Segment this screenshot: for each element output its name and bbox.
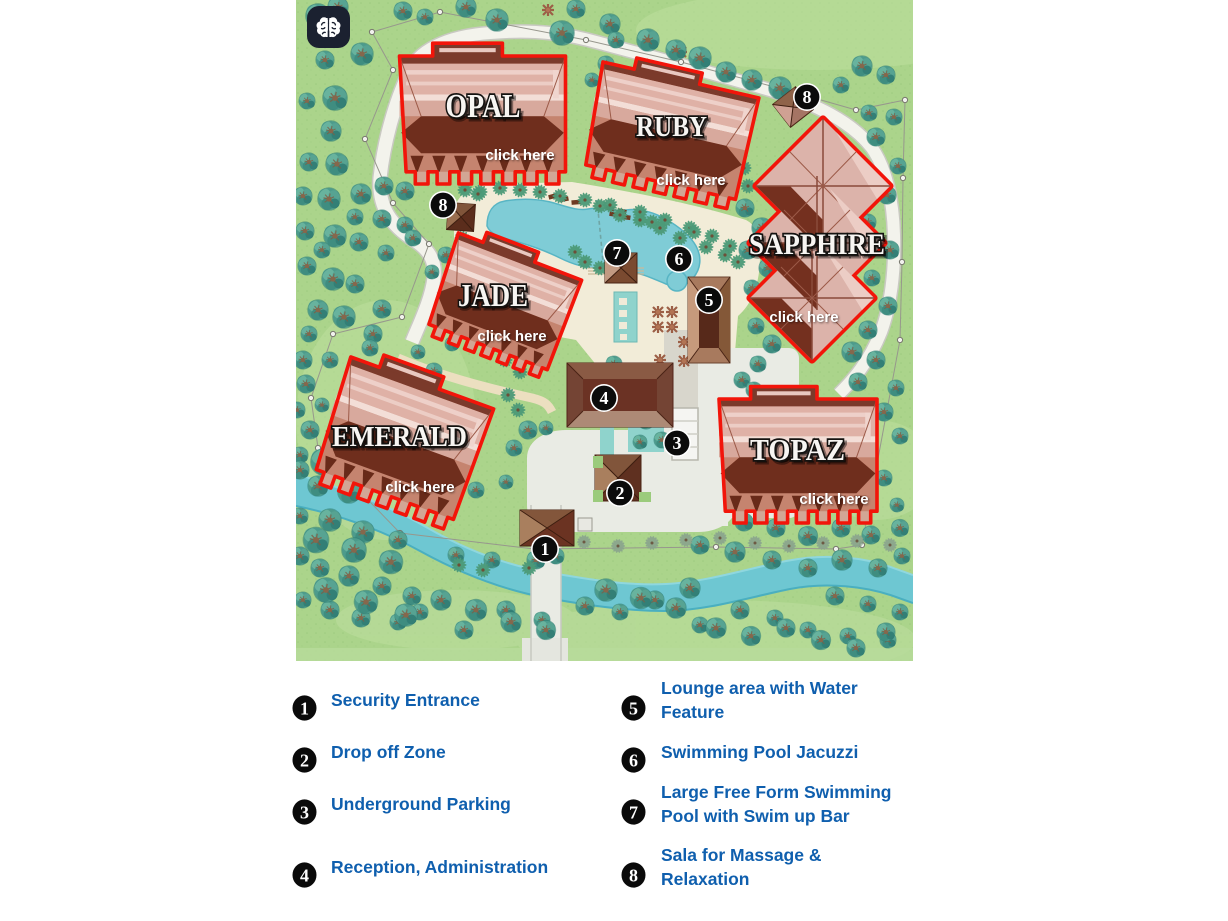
svg-text:4: 4 bbox=[300, 866, 309, 886]
svg-text:4: 4 bbox=[600, 388, 609, 408]
svg-text:3: 3 bbox=[673, 433, 682, 453]
svg-text:JADE: JADE bbox=[458, 277, 528, 313]
svg-text:8: 8 bbox=[803, 87, 812, 107]
svg-text:2: 2 bbox=[616, 483, 625, 503]
svg-text:click here: click here bbox=[477, 328, 546, 345]
svg-text:7: 7 bbox=[613, 243, 622, 263]
svg-text:RUBY: RUBY bbox=[636, 111, 707, 143]
svg-text:click here: click here bbox=[385, 479, 454, 496]
svg-text:5: 5 bbox=[705, 290, 714, 310]
svg-text:8: 8 bbox=[629, 866, 638, 886]
svg-text:1: 1 bbox=[541, 539, 550, 559]
svg-text:TOPAZ: TOPAZ bbox=[750, 432, 845, 467]
svg-text:7: 7 bbox=[629, 803, 638, 823]
svg-text:5: 5 bbox=[629, 699, 638, 719]
svg-text:SAPPHIRE: SAPPHIRE bbox=[749, 228, 885, 261]
svg-text:8: 8 bbox=[439, 195, 448, 215]
svg-text:3: 3 bbox=[300, 803, 309, 823]
svg-text:OPAL: OPAL bbox=[446, 88, 521, 125]
svg-text:EMERALD: EMERALD bbox=[332, 421, 467, 453]
svg-text:6: 6 bbox=[629, 751, 638, 771]
svg-text:6: 6 bbox=[675, 249, 684, 269]
svg-text:1: 1 bbox=[300, 699, 309, 719]
svg-text:2: 2 bbox=[300, 751, 309, 771]
svg-text:click here: click here bbox=[485, 147, 554, 164]
svg-text:click here: click here bbox=[769, 309, 838, 326]
svg-text:click here: click here bbox=[656, 172, 725, 189]
svg-text:click here: click here bbox=[799, 491, 868, 508]
